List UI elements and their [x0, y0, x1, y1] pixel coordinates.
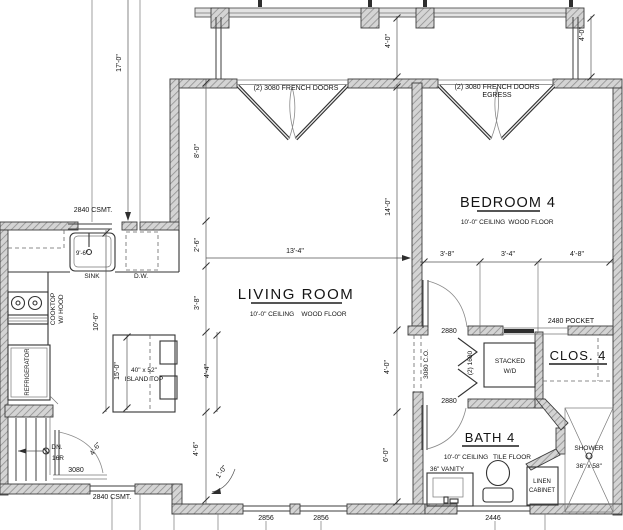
deck-post: [566, 8, 584, 28]
deck-post: [211, 8, 229, 28]
stairs-label-1: DN.: [51, 444, 62, 451]
french-doors-living-label: (2) 3080 FRENCH DOORS: [254, 85, 339, 92]
bath-door-label: 2880: [441, 398, 457, 405]
french-doors-bedroom-label: (2) 3080 FRENCH DOORS: [455, 84, 540, 91]
dim-4-8-bedroom: 4'-8": [570, 251, 584, 258]
bedroom-ceiling: 10'-0" CEILING: [461, 219, 505, 226]
bedroom-floor: WOOD FLOOR: [508, 219, 553, 226]
dim-3-8-bedroom: 3'-8": [440, 251, 454, 258]
dim-6-0: 6'-0": [383, 448, 390, 462]
dim-10-6: 10'-6": [93, 313, 100, 331]
dim-3-4-bedroom: 3'-4": [501, 251, 515, 258]
dim-4-0-hall: 4'-0": [384, 360, 391, 374]
floor-plan-drawing: LIVING ROOM 10'-0" CEILING WOOD FLOOR BE…: [0, 0, 623, 530]
washer-label-1: STACKED: [495, 358, 526, 365]
linen-label-1: LINEN: [533, 479, 551, 485]
sink-dim-label: 9'-6": [76, 251, 88, 257]
sink-label: SINK: [84, 273, 100, 280]
cased-opening-label: 3080 C.O.: [423, 349, 430, 379]
cooktop-label-1: COOKTOP: [50, 293, 57, 325]
living-room-floor: WOOD FLOOR: [301, 311, 346, 318]
island-label-1: 40" x 52": [131, 367, 158, 374]
shower-label-2: 36" x 58": [576, 463, 603, 470]
living-room-ceiling: 10'-0" CEILING: [250, 311, 294, 318]
dim-2-6: 2'-6": [194, 238, 201, 252]
window-2840-north-label: 2840 CSMT.: [74, 207, 113, 214]
dim-14-0: 14'-0": [385, 198, 392, 216]
bath-title: BATH 4: [465, 430, 516, 445]
dim-15-0: 15'-0": [114, 362, 121, 380]
floor-plan: LIVING ROOM 10'-0" CEILING WOOD FLOOR BE…: [0, 0, 623, 530]
bedroom-title: BEDROOM 4: [460, 195, 556, 211]
dim-4-6-west: 4'-6": [193, 442, 200, 456]
deck-post: [416, 8, 434, 28]
bath-ceiling: 10'-0" CEILING: [444, 454, 488, 461]
cooktop-label-2: W/ HOOD: [58, 294, 65, 324]
entry-door-label: 3080: [68, 467, 84, 474]
dim-4-0-deck-left: 4'-0": [385, 34, 392, 48]
window-2856-left-label: 2856: [258, 515, 274, 522]
deck-post: [361, 8, 379, 28]
bath-floor: TILE FLOOR: [493, 454, 531, 461]
washer-label-2: W/D: [504, 368, 517, 375]
bedroom-door-label: 2880: [441, 328, 457, 335]
dishwasher-label: D.W.: [134, 273, 148, 280]
stairs-label-2: 16R: [52, 455, 64, 462]
bifold-label: (2) 1680: [467, 351, 474, 376]
closet-title: CLOS. 4: [550, 348, 607, 363]
dim-17-0: 17'-0": [116, 54, 123, 72]
vanity-label: 36" VANITY: [430, 466, 465, 473]
window-2446-label: 2446: [485, 515, 501, 522]
refrigerator-label: REFRIGERATOR: [25, 348, 31, 396]
living-room-title: LIVING ROOM: [238, 286, 355, 303]
window-2856-right-label: 2856: [313, 515, 329, 522]
dim-3-8-west: 3'-8": [194, 296, 201, 310]
french-doors-egress-label: EGRESS: [482, 92, 512, 99]
dim-4-4: 4'-4": [204, 364, 211, 378]
shower-label-1: SHOWER: [574, 445, 604, 452]
dim-13-4: 13'-4": [286, 248, 304, 255]
linen-label-2: CABINET: [529, 488, 555, 494]
dim-8-0: 8'-0": [194, 144, 201, 158]
dim-4-0-deck-right: 4'-0": [579, 27, 586, 41]
island-label-2: ISLAND TOP: [125, 376, 163, 383]
window-2840-south-label: 2840 CSMT.: [93, 494, 132, 501]
pocket-door-label: 2480 POCKET: [548, 318, 595, 325]
